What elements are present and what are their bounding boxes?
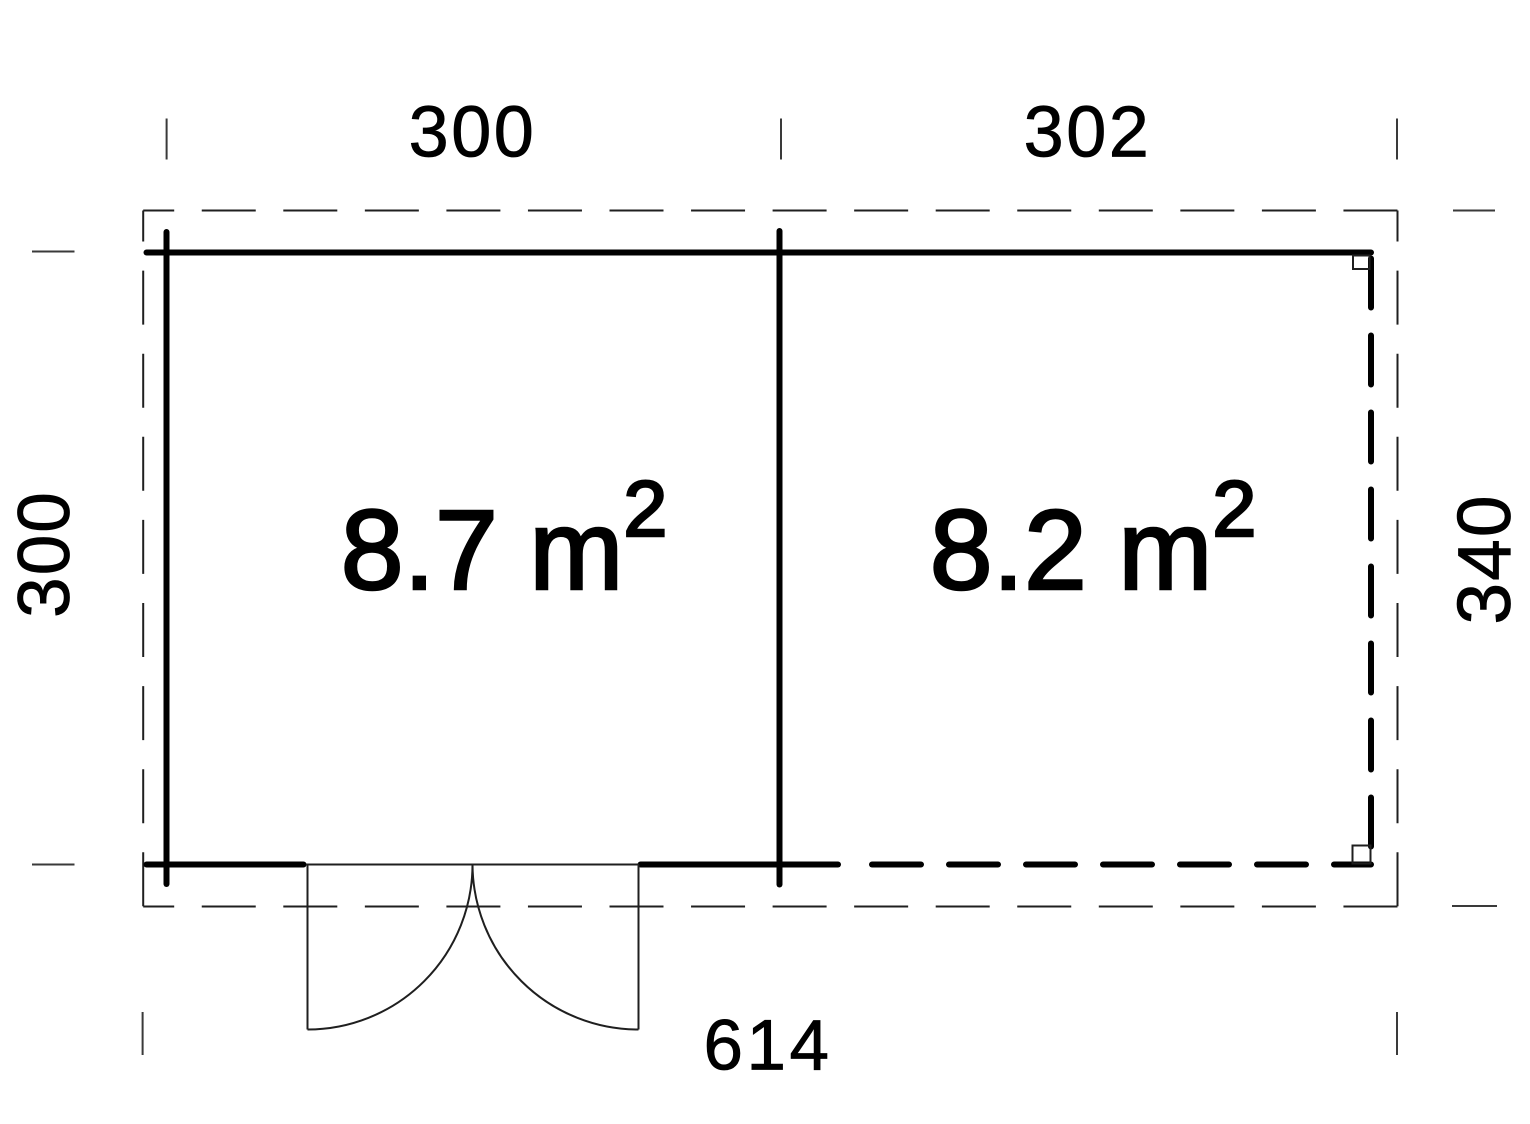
svg-text:340: 340 <box>1442 493 1526 624</box>
svg-text:300: 300 <box>409 93 537 173</box>
svg-text:614: 614 <box>704 1007 833 1086</box>
svg-text:8.7 m2: 8.7 m2 <box>341 464 668 613</box>
svg-text:300: 300 <box>4 490 85 618</box>
svg-text:8.2 m2: 8.2 m2 <box>930 464 1257 613</box>
svg-text:302: 302 <box>1024 93 1152 173</box>
